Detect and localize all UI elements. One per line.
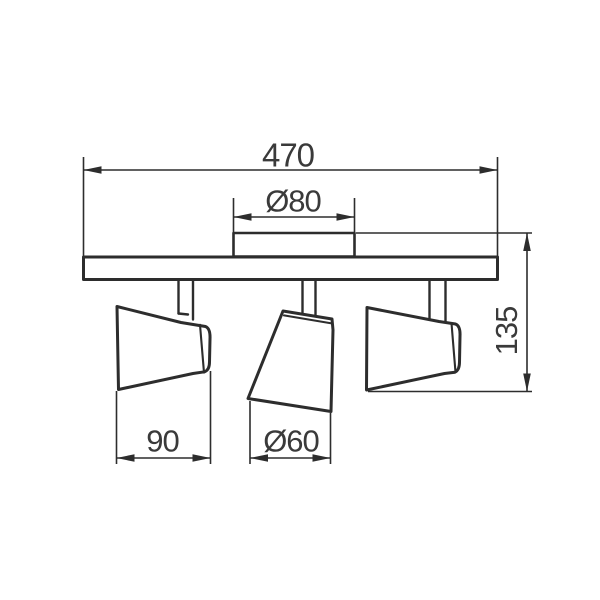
label-height: 135	[489, 307, 524, 356]
fixture-bar	[84, 257, 498, 280]
stem-left	[179, 281, 194, 320]
spotlight-head-middle	[248, 311, 333, 412]
arrow-down-icon	[523, 374, 531, 392]
drawing-canvas: 470 Ø80 135 90 Ø60	[0, 0, 600, 600]
label-head-width: 90	[146, 424, 179, 459]
label-head-diameter: Ø60	[263, 424, 319, 459]
arrow-right-icon	[480, 166, 498, 174]
mounting-plate	[234, 233, 355, 257]
arrow-up-icon	[523, 233, 531, 251]
label-overall-width: 470	[262, 137, 315, 174]
arrow-left-icon	[117, 454, 135, 462]
arrow-right-icon	[193, 454, 211, 462]
label-plate-diameter: Ø80	[265, 184, 321, 219]
arrow-right-icon	[337, 213, 355, 221]
spotlight-head-left	[117, 307, 210, 390]
fixture-dimension-drawing: 470 Ø80 135 90 Ø60	[0, 0, 600, 600]
arrow-left-icon	[234, 213, 252, 221]
arrow-left-icon	[84, 166, 102, 174]
